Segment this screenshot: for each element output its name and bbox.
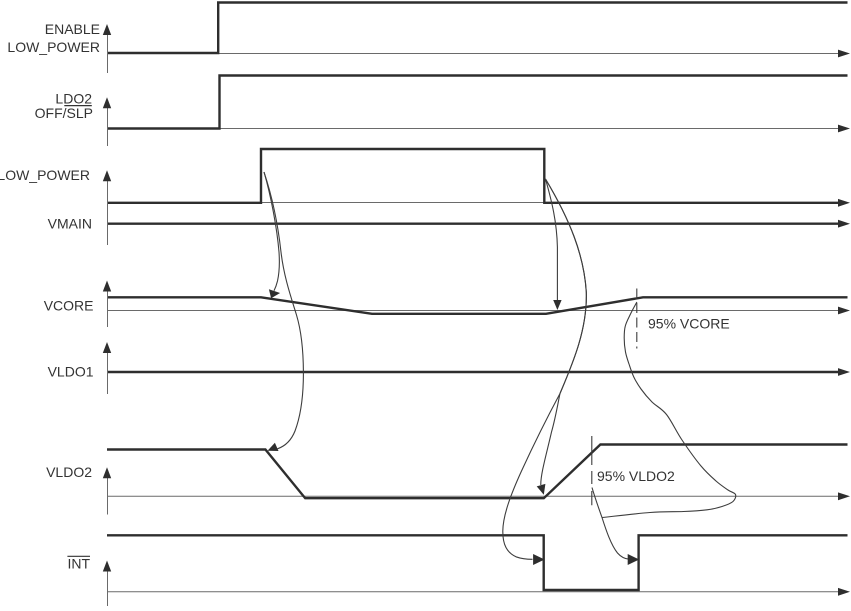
svg-text:VCORE: VCORE xyxy=(44,298,94,314)
svg-text:LOW_POWER: LOW_POWER xyxy=(7,39,100,55)
svg-text:OFF/SLP: OFF/SLP xyxy=(35,105,93,121)
svg-text:95% VCORE: 95% VCORE xyxy=(648,315,730,331)
svg-text:VMAIN: VMAIN xyxy=(48,215,92,231)
svg-text:VLDO1: VLDO1 xyxy=(48,364,94,380)
svg-text:ENABLE: ENABLE xyxy=(45,21,100,37)
svg-text:LDO2: LDO2 xyxy=(55,90,92,106)
svg-text:INT: INT xyxy=(67,556,90,572)
svg-text:95% VLDO2: 95% VLDO2 xyxy=(597,468,675,484)
svg-text:VLDO2: VLDO2 xyxy=(46,464,92,480)
svg-text:LOW_POWER: LOW_POWER xyxy=(0,167,90,183)
